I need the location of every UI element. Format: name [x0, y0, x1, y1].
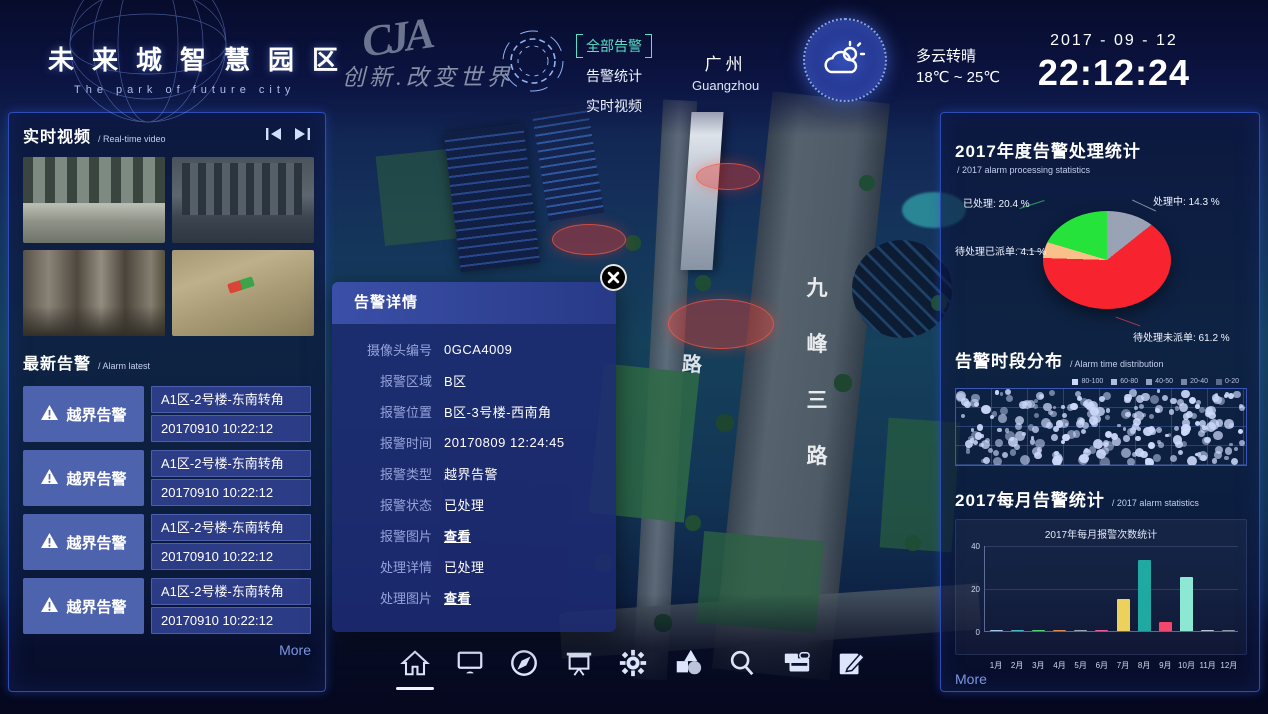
bar-slot: [1091, 630, 1112, 632]
scatter-point: [1020, 455, 1030, 465]
alarm-detail-popup: 告警详情 摄像头编号0GCA4009报警区域B区报警位置B区-3号楼-西南角报警…: [332, 282, 616, 632]
alarm-type-badge[interactable]: 越界告警: [23, 514, 144, 570]
scatter-point: [1077, 396, 1082, 401]
scatter-point: [1169, 409, 1175, 415]
alarm-info: A1区-2号楼-东南转角20170910 10:22:12: [151, 450, 311, 506]
warning-icon: [40, 596, 59, 617]
x-axis-label: 6月: [1091, 660, 1112, 671]
alarm-zone-marker[interactable]: [668, 299, 774, 349]
right-panel: 2017年度告警处理统计 / 2017 alarm processing sta…: [940, 112, 1260, 692]
city-block: 广州 Guangzhou: [692, 50, 759, 93]
bar-plot-area: 020401月2月3月4月5月6月7月8月9月10月11月12月: [984, 546, 1238, 632]
scatter-point: [1225, 447, 1233, 455]
monitor-icon[interactable]: [453, 648, 487, 692]
alarm-info: A1区-2号楼-东南转角20170910 10:22:12: [151, 578, 311, 634]
popup-field-value: 已处理: [444, 557, 485, 576]
compass-icon[interactable]: [507, 648, 541, 692]
bar-month-4: [1053, 630, 1066, 632]
alarm-location: A1区-2号楼-东南转角: [151, 386, 311, 413]
weather-range: 18℃ ~ 25℃: [916, 67, 1000, 88]
bar-slot: [1007, 630, 1028, 632]
scatter-legend: 80-10060-8040-5020-400-20: [955, 378, 1239, 385]
close-icon[interactable]: [600, 264, 627, 291]
bar-slot: [1176, 577, 1197, 631]
x-axis-label: 5月: [1070, 660, 1091, 671]
street-name-label: 九峰三路: [804, 272, 830, 470]
scatter-point: [1139, 404, 1144, 409]
scatter-point: [1149, 414, 1154, 419]
legend-swatch: [1111, 379, 1117, 385]
y-axis-tick: 40: [971, 542, 980, 551]
alarm-time: 20170910 10:22:12: [151, 415, 311, 442]
bar-month-11: [1201, 630, 1214, 632]
alarm-time: 20170910 10:22:12: [151, 479, 311, 506]
popup-row: 报警类型越界告警: [332, 458, 616, 489]
x-axis-label: 1月: [986, 660, 1007, 671]
pie-label-pending-undispatched: 待处理未派单: 61.2 %: [1133, 329, 1230, 344]
scatter-point: [1224, 456, 1229, 461]
scatter-point: [1156, 427, 1162, 433]
statistics-more-link[interactable]: More: [955, 671, 1245, 687]
popup-field-label: 处理详情: [332, 557, 432, 576]
bar-month-7: [1117, 599, 1130, 631]
scatter-point: [1000, 392, 1004, 396]
video-grid: [23, 157, 311, 336]
city-name: 广州: [692, 50, 759, 75]
scatter-point: [995, 390, 1000, 395]
scatter-point: [1175, 406, 1180, 411]
scatter-point: [995, 439, 1003, 447]
company-slogan: 创新.改变世界: [342, 58, 514, 92]
popup-row: 摄像头编号0GCA4009: [332, 334, 616, 365]
weather-widget: [803, 18, 887, 102]
alarm-section-header: 最新告警 / Alarm latest: [23, 350, 311, 374]
alarm-list: 越界告警A1区-2号楼-东南转角20170910 10:22:12越界告警A1区…: [23, 386, 311, 634]
top-header: 未来城智慧园区 The park of future city CJA 创新.改…: [0, 0, 1268, 112]
scatter-legend-item: 80-100: [1072, 378, 1103, 385]
left-panel: 实时视频 / Real-time video 最新告警 / Alarm late…: [8, 112, 326, 692]
popup-field-value: B区: [444, 371, 467, 390]
popup-field-value: 已处理: [444, 495, 485, 514]
sun-cloud-icon: [823, 40, 867, 80]
scatter-legend-item: 60-80: [1111, 378, 1138, 385]
scatter-point: [1195, 453, 1198, 456]
scatter-point: [981, 405, 991, 415]
scatter-point: [1217, 397, 1225, 405]
bar-month-9: [1159, 622, 1172, 631]
scatter-point: [1100, 457, 1110, 466]
scatter-point: [1181, 390, 1189, 398]
pie-label-pending-dispatched: 待处理已派单: 4.1 %: [955, 243, 1046, 258]
alarm-location: A1区-2号楼-东南转角: [151, 578, 311, 605]
header-nav: 全部告警 告警统计 实时视频: [576, 34, 652, 118]
scatter-legend-item: 40-50: [1146, 378, 1173, 385]
scatter-point: [1121, 409, 1131, 419]
bar-month-6: [1095, 630, 1108, 632]
video-section-subtitle: / Real-time video: [98, 134, 166, 144]
nav-realtime-video[interactable]: 实时视频: [576, 94, 652, 118]
date-display: 2017 - 09 - 12: [1038, 32, 1190, 50]
scatter-point: [1081, 429, 1086, 434]
scatter-point: [1106, 408, 1111, 413]
scatter-point: [1177, 399, 1184, 406]
scatter-point: [1155, 408, 1160, 413]
warning-icon: [40, 532, 59, 553]
bar-section-subtitle: / 2017 alarm statistics: [1112, 498, 1199, 508]
scatter-point: [1095, 407, 1105, 417]
video-thumbnail-stairs[interactable]: [172, 250, 314, 336]
scatter-point: [1170, 398, 1177, 405]
swirl-ring-decoration: [498, 26, 568, 96]
x-axis-label: 3月: [1028, 660, 1049, 671]
popup-row: 处理图片查看: [332, 582, 616, 613]
scatter-point: [1229, 443, 1232, 446]
shapes-icon[interactable]: [671, 648, 705, 692]
scatter-point: [1212, 458, 1217, 463]
scatter-legend-item: 0-20: [1216, 378, 1239, 385]
bracket-decoration: [576, 34, 583, 58]
scatter-section-header: 告警时段分布 / Alarm time distribution: [955, 347, 1245, 372]
legend-swatch: [1146, 379, 1152, 385]
bar-month-10: [1180, 577, 1193, 631]
alarm-location: A1区-2号楼-东南转角: [151, 514, 311, 541]
alarm-processing-pie-chart: 处理中: 14.3 % 待处理未派单: 61.2 % 待处理已派单: 4.1 %…: [955, 189, 1245, 341]
scatter-point: [1000, 407, 1008, 415]
time-display: 22:12:24: [1038, 52, 1190, 94]
bar-section-title: 2017每月告警统计: [955, 486, 1105, 511]
y-axis-tick: 20: [971, 585, 980, 594]
card-reader-icon[interactable]: [780, 648, 814, 692]
scatter-point: [1077, 417, 1084, 424]
bottom-toolbar: [398, 648, 868, 692]
scatter-point: [1049, 390, 1055, 396]
scatter-point: [973, 440, 978, 445]
scatter-point: [1199, 407, 1205, 413]
scatter-point: [1224, 419, 1234, 429]
scatter-point: [1150, 395, 1159, 404]
scatter-point: [1028, 424, 1035, 431]
scatter-point: [1231, 458, 1238, 465]
map-building-solar: [444, 124, 540, 273]
scatter-point: [1079, 454, 1089, 464]
popup-field-value: 越界告警: [444, 464, 498, 483]
city-name-en: Guangzhou: [692, 78, 759, 93]
popup-row: 处理详情已处理: [332, 551, 616, 582]
popup-field-label: 报警类型: [332, 464, 432, 483]
bar-month-2: [1011, 630, 1024, 632]
popup-field-value: 0GCA4009: [444, 342, 512, 357]
scatter-point: [1127, 458, 1135, 466]
scatter-point: [1168, 433, 1172, 437]
alarm-type-badge[interactable]: 越界告警: [23, 450, 144, 506]
scatter-point: [1124, 394, 1132, 402]
warning-icon: [40, 404, 59, 425]
scatter-point: [993, 457, 1002, 466]
scatter-point: [1103, 392, 1111, 400]
scatter-point: [1148, 426, 1155, 433]
scatter-point: [1061, 405, 1065, 409]
scatter-point: [1030, 439, 1035, 444]
scatter-point: [1234, 447, 1238, 451]
alarm-zone-marker[interactable]: [552, 224, 626, 255]
bar-month-12: [1222, 630, 1235, 632]
scatter-point: [1050, 411, 1056, 417]
scatter-point: [1121, 448, 1131, 458]
scatter-point: [1002, 452, 1008, 458]
weather-text: 多云转晴 18℃ ~ 25℃: [916, 46, 1000, 88]
x-axis-label: 9月: [1155, 660, 1176, 671]
bar-month-1: [990, 630, 1003, 632]
alarm-zone-marker[interactable]: [696, 163, 760, 190]
y-axis-tick: 0: [976, 628, 980, 637]
scatter-point: [1051, 434, 1058, 441]
scatter-point: [1132, 452, 1137, 457]
scatter-point: [1233, 391, 1240, 398]
scatter-point: [1133, 418, 1141, 426]
scatter-point: [1206, 406, 1216, 416]
scatter-point: [961, 414, 965, 418]
bracket-decoration: [645, 34, 652, 58]
popup-field-value: B区-3号楼-西南角: [444, 402, 552, 421]
alarm-list-item[interactable]: 越界告警A1区-2号楼-东南转角20170910 10:22:12: [23, 514, 311, 570]
video-thumbnail-corridor[interactable]: [23, 250, 165, 336]
scatter-point: [1033, 404, 1039, 410]
bar-slot: [1197, 630, 1218, 632]
scatter-point: [1206, 422, 1216, 432]
scatter-point: [1134, 406, 1138, 410]
scatter-point: [1036, 392, 1044, 400]
scatter-point: [1181, 428, 1189, 436]
scatter-section-title: 告警时段分布: [955, 347, 1063, 372]
x-axis-label: 10月: [1176, 660, 1197, 671]
scatter-point: [1105, 431, 1112, 438]
gridline: [985, 589, 1238, 590]
scatter-point: [990, 415, 994, 419]
brand-block: 未来城智慧园区 The park of future city: [48, 40, 356, 96]
popup-field-label: 报警区域: [332, 371, 432, 390]
x-axis-label: 12月: [1218, 660, 1239, 671]
scatter-point: [1015, 416, 1024, 425]
popup-field-label: 报警时间: [332, 433, 432, 452]
gridline: [985, 546, 1238, 547]
scatter-point: [1198, 451, 1208, 461]
map-stadium: [852, 240, 952, 338]
scatter-point: [998, 414, 1007, 423]
alarm-type-badge[interactable]: 越界告警: [23, 386, 144, 442]
skip-forward-icon[interactable]: [293, 126, 311, 142]
legend-swatch: [1216, 379, 1222, 385]
scatter-point: [1215, 393, 1218, 396]
alarm-section-title: 最新告警: [23, 350, 91, 374]
bar-month-3: [1032, 630, 1045, 632]
scatter-point: [1182, 419, 1190, 427]
bar-slot: [1155, 622, 1176, 631]
scatter-point: [1204, 437, 1211, 444]
bar-slot: [1134, 560, 1155, 631]
scatter-point: [1062, 413, 1068, 419]
popup-view-link[interactable]: 查看: [444, 588, 471, 607]
popup-view-link[interactable]: 查看: [444, 526, 471, 545]
alarm-list-item[interactable]: 越界告警A1区-2号楼-东南转角20170910 10:22:12: [23, 450, 311, 506]
scatter-point: [1135, 436, 1140, 441]
scatter-point: [971, 428, 975, 432]
bar-chart-inner-title: 2017年每月报警次数统计: [956, 520, 1246, 541]
scatter-point: [1053, 426, 1059, 432]
scatter-point: [993, 450, 999, 456]
scatter-point: [1123, 427, 1127, 431]
video-thumbnail-street[interactable]: [23, 157, 165, 243]
scatter-point: [1181, 441, 1187, 447]
scatter-point: [977, 424, 984, 431]
scatter-point: [961, 398, 969, 406]
scatter-point: [1148, 442, 1155, 449]
scatter-point: [1070, 403, 1078, 411]
scatter-point: [1105, 415, 1110, 420]
popup-field-label: 报警位置: [332, 402, 432, 421]
popup-row: 报警区域B区: [332, 365, 616, 396]
bar-month-8: [1138, 560, 1151, 631]
scatter-point: [1137, 427, 1141, 431]
pie-section-title: 2017年度告警处理统计: [955, 137, 1141, 162]
alarm-location: A1区-2号楼-东南转角: [151, 450, 311, 477]
scatter-point: [1198, 430, 1205, 437]
home-icon[interactable]: [398, 648, 432, 692]
scatter-point: [1191, 413, 1197, 419]
scatter-point: [1187, 456, 1197, 466]
pie-label-handled: 已处理: 20.4 %: [963, 195, 1030, 210]
scatter-point: [1157, 389, 1160, 392]
scatter-point: [1006, 395, 1013, 402]
x-axis-label: 2月: [1007, 660, 1028, 671]
scatter-point: [1103, 440, 1110, 447]
scatter-point: [1010, 449, 1017, 456]
scatter-point: [1101, 447, 1109, 455]
street-name-label: 路: [681, 347, 702, 377]
bar-slot: [1070, 630, 1091, 632]
alarms-more-link[interactable]: More: [23, 642, 311, 658]
scatter-point: [970, 399, 978, 407]
scatter-point: [1145, 458, 1151, 464]
app-subtitle: The park of future city: [74, 84, 356, 96]
popup-field-label: 处理图片: [332, 588, 432, 607]
x-axis-label: 11月: [1197, 660, 1218, 671]
edit-icon[interactable]: [834, 648, 868, 692]
projection-screen-icon[interactable]: [562, 648, 596, 692]
weather-condition: 多云转晴: [916, 46, 1000, 67]
alarm-time: 20170910 10:22:12: [151, 607, 311, 634]
scatter-point: [1239, 405, 1245, 411]
scatter-point: [1153, 454, 1161, 462]
scatter-point: [1162, 395, 1168, 401]
scatter-point: [1178, 450, 1183, 455]
scatter-point: [1034, 452, 1042, 460]
scatter-point: [1170, 455, 1178, 463]
bar-slot: [1218, 630, 1239, 632]
scatter-point: [975, 432, 982, 439]
scatter-point: [1123, 435, 1130, 442]
smart-park-dashboard: 九峰三路 路 未来城智慧园区 The park of future city C…: [0, 0, 1268, 714]
popup-title: 告警详情: [332, 282, 616, 324]
legend-swatch: [1072, 379, 1078, 385]
scatter-legend-item: 20-40: [1181, 378, 1208, 385]
popup-field-label: 摄像头编号: [332, 340, 432, 359]
scatter-point: [1174, 426, 1180, 432]
alarm-info: A1区-2号楼-东南转角20170910 10:22:12: [151, 514, 311, 570]
pie-label-processing: 处理中: 14.3 %: [1153, 193, 1220, 208]
scatter-point: [1238, 429, 1243, 434]
alarm-list-item[interactable]: 越界告警A1区-2号楼-东南转角20170910 10:22:12: [23, 386, 311, 442]
pie-graphic: [1043, 211, 1171, 309]
scatter-point: [1228, 393, 1234, 399]
alarm-time: 20170910 10:22:12: [151, 543, 311, 570]
scatter-point: [1117, 424, 1121, 428]
nav-all-alarms[interactable]: 全部告警: [576, 34, 652, 58]
alarm-list-item[interactable]: 越界告警A1区-2号楼-东南转角20170910 10:22:12: [23, 578, 311, 634]
app-title: 未来城智慧园区: [48, 40, 356, 77]
scatter-point: [1073, 430, 1080, 437]
popup-row: 报警时间20170809 12:24:45: [332, 427, 616, 458]
x-axis-label: 7月: [1113, 660, 1134, 671]
popup-row: 报警图片查看: [332, 520, 616, 551]
search-icon[interactable]: [725, 648, 759, 692]
popup-field-label: 报警状态: [332, 495, 432, 514]
bar-section-header: 2017每月告警统计 / 2017 alarm statistics: [955, 486, 1245, 511]
scatter-point: [1213, 431, 1223, 441]
video-thumbnail-building[interactable]: [172, 157, 314, 243]
nav-alarm-statistics[interactable]: 告警统计: [576, 64, 652, 88]
alarm-section-subtitle: / Alarm latest: [98, 361, 150, 371]
legend-swatch: [1181, 379, 1187, 385]
x-axis-label: 8月: [1134, 660, 1155, 671]
scatter-point: [1136, 395, 1144, 403]
bar-slot: [986, 630, 1007, 632]
scatter-point: [997, 428, 1002, 433]
scatter-point: [1053, 406, 1056, 409]
scatter-section-subtitle: / Alarm time distribution: [1070, 359, 1164, 369]
popup-row: 报警状态已处理: [332, 489, 616, 520]
leader-line: [1116, 317, 1141, 327]
scatter-point: [1052, 456, 1062, 466]
scatter-point: [1239, 440, 1245, 446]
bar-slot: [1113, 599, 1134, 631]
monthly-alarm-bar-chart: 2017年每月报警次数统计 020401月2月3月4月5月6月7月8月9月10月…: [955, 519, 1247, 655]
scatter-point: [1034, 413, 1039, 418]
x-axis-label: 4月: [1049, 660, 1070, 671]
bar-slot: [1028, 630, 1049, 632]
popup-row: 报警位置B区-3号楼-西南角: [332, 396, 616, 427]
bar-slot: [1049, 630, 1070, 632]
pie-section-header: 2017年度告警处理统计 / 2017 alarm processing sta…: [955, 137, 1245, 175]
bar-month-5: [1074, 630, 1087, 632]
warning-icon: [40, 468, 59, 489]
popup-detail-rows: 摄像头编号0GCA4009报警区域B区报警位置B区-3号楼-西南角报警时间201…: [332, 324, 616, 613]
pie-section-subtitle: / 2017 alarm processing statistics: [957, 165, 1090, 175]
popup-field-label: 报警图片: [332, 526, 432, 545]
scatter-point: [981, 459, 985, 463]
gear-icon[interactable]: [616, 648, 650, 692]
alarm-info: A1区-2号楼-东南转角20170910 10:22:12: [151, 386, 311, 442]
datetime-block: 2017 - 09 - 12 22:12:24: [1038, 32, 1190, 94]
scatter-point: [1022, 432, 1027, 437]
popup-field-value: 20170809 12:24:45: [444, 435, 565, 450]
alarm-time-scatter-chart: [955, 388, 1247, 466]
alarm-type-badge[interactable]: 越界告警: [23, 578, 144, 634]
